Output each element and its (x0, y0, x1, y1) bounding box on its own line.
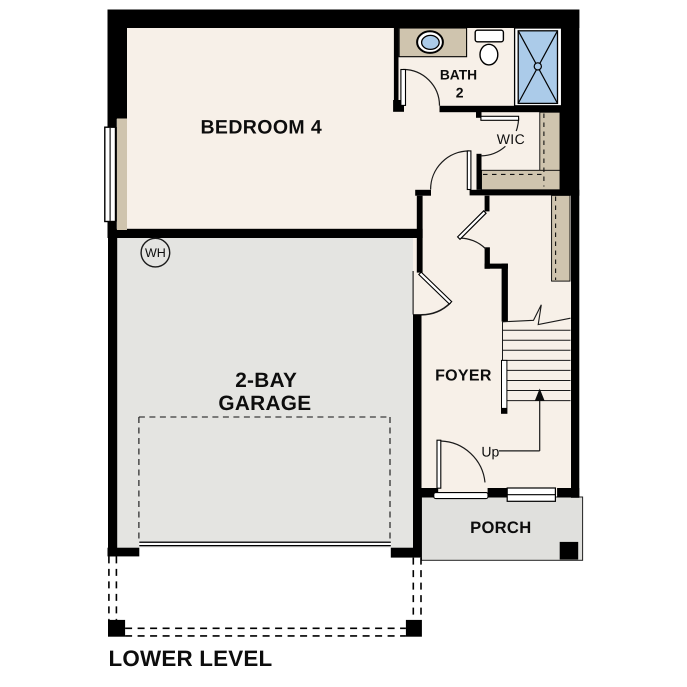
svg-text:BATH: BATH (440, 67, 477, 82)
svg-text:GARAGE: GARAGE (218, 392, 311, 415)
svg-text:PORCH: PORCH (470, 518, 531, 537)
svg-text:BEDROOM 4: BEDROOM 4 (200, 116, 322, 138)
svg-text:2: 2 (456, 84, 464, 100)
svg-text:WIC: WIC (497, 131, 525, 147)
svg-text:FOYER: FOYER (435, 368, 492, 385)
svg-text:LOWER LEVEL: LOWER LEVEL (109, 646, 273, 671)
svg-text:2-BAY: 2-BAY (235, 369, 297, 392)
svg-text:WH: WH (145, 246, 166, 260)
svg-text:Up: Up (481, 444, 499, 460)
